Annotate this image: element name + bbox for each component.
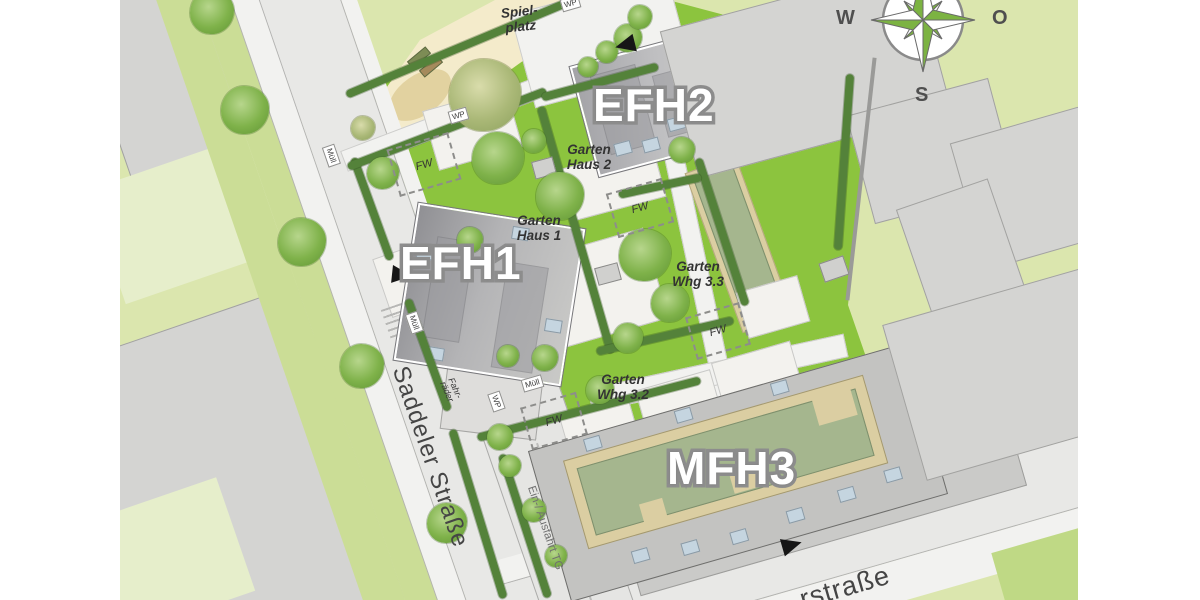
fw-area: FW xyxy=(685,302,751,360)
tree xyxy=(499,455,521,477)
fw-area: FW xyxy=(386,132,461,197)
label-efh2: EFH2 xyxy=(593,78,715,132)
muell-label: Müll xyxy=(322,144,341,168)
tree xyxy=(522,129,546,153)
compass-south-label: S xyxy=(915,84,928,107)
tree xyxy=(497,345,519,367)
tree xyxy=(669,137,695,163)
tree xyxy=(351,116,375,140)
hedge xyxy=(834,74,854,250)
tree xyxy=(190,0,234,34)
tree xyxy=(578,57,598,77)
garden-shed xyxy=(818,255,849,282)
label-mfh3: MFH3 xyxy=(667,441,796,495)
compass-west-label: W xyxy=(836,7,855,30)
compass-east-label: O xyxy=(992,7,1008,30)
muell-label: Müll xyxy=(521,374,544,392)
tree xyxy=(278,218,326,266)
fw-label: FW xyxy=(414,156,434,172)
tree xyxy=(487,424,513,450)
tree xyxy=(628,5,652,29)
muell-label: Müll xyxy=(405,311,424,335)
fw-label: FW xyxy=(544,413,564,429)
site-plan-map: FWFWFWFWMüllMüllMüllWPWPWPFahr-räder Spi… xyxy=(120,0,1078,600)
tree xyxy=(221,86,269,134)
tree xyxy=(613,323,643,353)
garden-shed xyxy=(594,262,622,286)
fw-label: FW xyxy=(630,200,650,216)
tree xyxy=(651,284,689,322)
tree xyxy=(340,344,384,388)
compass-rose-icon xyxy=(863,0,983,80)
tree xyxy=(472,132,524,184)
fw-label: FW xyxy=(708,323,728,339)
fw-area: FW xyxy=(606,178,674,238)
label-garten-haus2: GartenHaus 2 xyxy=(544,142,634,172)
tree xyxy=(532,345,558,371)
site-plan-page: FWFWFWFWMüllMüllMüllWPWPWPFahr-räder Spi… xyxy=(0,0,1200,600)
wp-label: WP xyxy=(487,390,505,412)
label-efh1: EFH1 xyxy=(400,236,522,290)
label-garten-whg33: GartenWhg 3.3 xyxy=(653,259,743,289)
label-garten-whg32: GartenWhg 3.2 xyxy=(578,372,668,402)
